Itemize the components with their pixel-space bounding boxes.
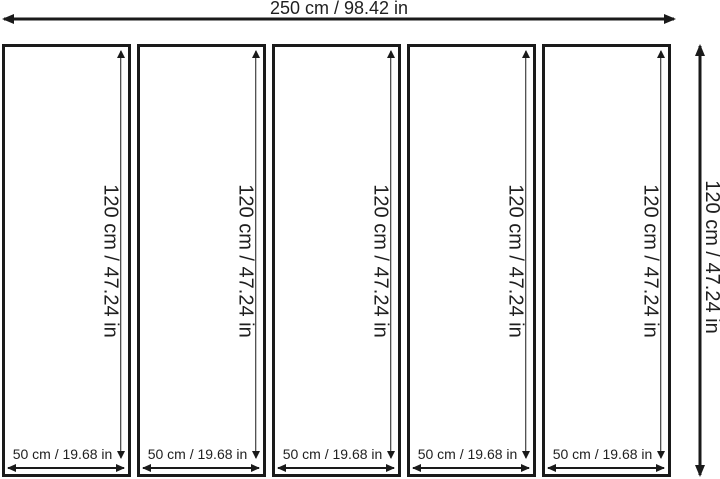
dimension-diagram: 250 cm / 98.42 in 120 cm / 47.24 in 50 c… xyxy=(0,0,720,479)
panel-width-arrow-icon xyxy=(277,463,395,473)
arrow-shaft xyxy=(413,467,529,469)
panel-width-arrow-icon xyxy=(142,463,260,473)
total-height-label: 120 cm / 47.24 in xyxy=(702,180,720,333)
panel-width-arrow-icon xyxy=(547,463,665,473)
panel-5: 120 cm / 47.24 in 50 cm / 19.68 in xyxy=(542,44,671,477)
panel-height-label: 120 cm / 47.24 in xyxy=(100,184,120,337)
arrow-shaft xyxy=(143,467,259,469)
arrow-shaft xyxy=(548,467,664,469)
panel-4: 120 cm / 47.24 in 50 cm / 19.68 in xyxy=(407,44,536,477)
panel-width-label: 50 cm / 19.68 in xyxy=(7,447,118,462)
panel-height-label: 120 cm / 47.24 in xyxy=(505,184,525,337)
panel-width-label: 50 cm / 19.68 in xyxy=(412,447,523,462)
total-width-arrow-icon xyxy=(2,12,676,25)
panel-height-label: 120 cm / 47.24 in xyxy=(370,184,390,337)
panel-width-label: 50 cm / 19.68 in xyxy=(142,447,253,462)
panel-height-label: 120 cm / 47.24 in xyxy=(640,184,660,337)
arrow-shaft xyxy=(278,467,394,469)
panel-2: 120 cm / 47.24 in 50 cm / 19.68 in xyxy=(137,44,266,477)
arrow-shaft xyxy=(8,467,124,469)
panel-height-label: 120 cm / 47.24 in xyxy=(235,184,255,337)
panel-width-label: 50 cm / 19.68 in xyxy=(547,447,658,462)
arrow-shaft xyxy=(4,17,674,20)
panel-width-arrow-icon xyxy=(412,463,530,473)
panel-width-label: 50 cm / 19.68 in xyxy=(277,447,388,462)
panel-width-arrow-icon xyxy=(7,463,125,473)
panel-1: 120 cm / 47.24 in 50 cm / 19.68 in xyxy=(2,44,131,477)
panel-3: 120 cm / 47.24 in 50 cm / 19.68 in xyxy=(272,44,401,477)
